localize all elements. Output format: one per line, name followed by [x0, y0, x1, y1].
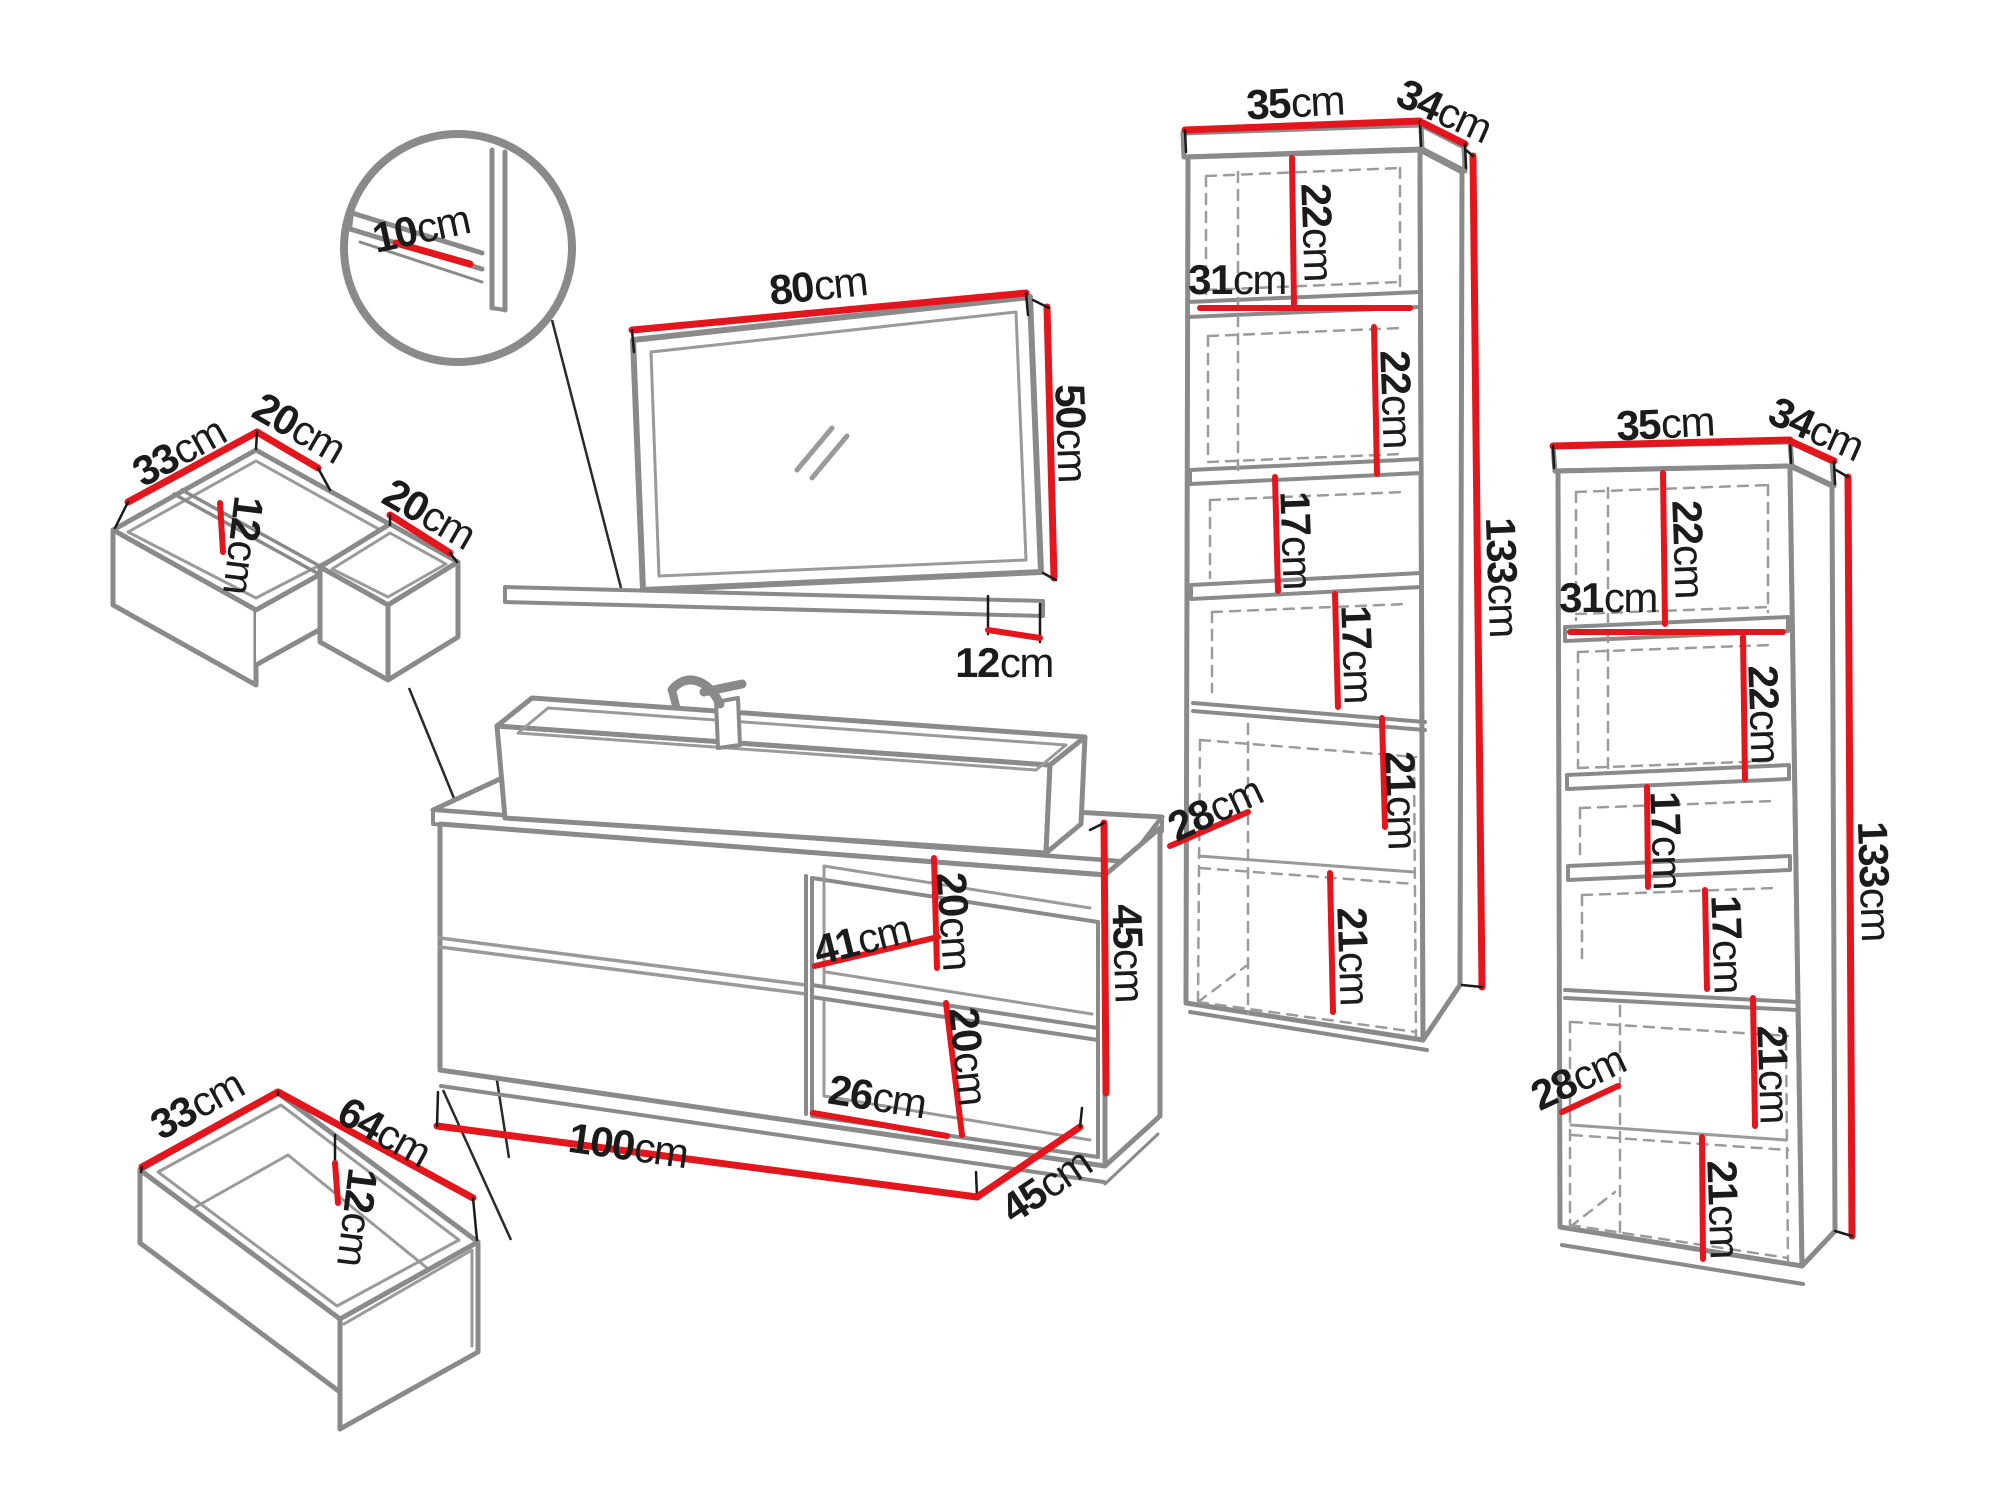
label-mirror-width: 80cm	[767, 260, 869, 312]
label-cab1-upper-niche: 22cm	[1294, 182, 1339, 281]
label-cab1-door-lower: 21cm	[1330, 906, 1375, 1005]
label-cab1-fourth-niche: 17cm	[1334, 604, 1379, 703]
label-vanity-niche-upper-height: 20cm	[930, 871, 979, 971]
label-cab2-top-width: 35cm	[1615, 400, 1715, 447]
label-cab2-inner-width: 31cm	[1559, 577, 1657, 619]
label-cab1-height: 133cm	[1479, 517, 1525, 638]
label-cab2-height: 133cm	[1851, 821, 1897, 942]
mirror-drawing	[505, 293, 1056, 642]
label-vanity-height: 45cm	[1105, 903, 1150, 1002]
label-cab2-second-niche: 22cm	[1741, 664, 1786, 763]
label-cab2-door-upper: 21cm	[1750, 1024, 1795, 1123]
label-cab1-inner-width: 31cm	[1188, 259, 1286, 301]
label-cab1-door-upper: 21cm	[1378, 750, 1423, 849]
label-cab1-third-niche: 17cm	[1273, 490, 1318, 589]
label-drawer-depth: 12cm	[330, 1166, 384, 1268]
label-mirror-height: 50cm	[1048, 383, 1093, 482]
label-mirror-shelf-depth: 12cm	[955, 642, 1053, 684]
vanity-drawing	[433, 680, 1162, 1197]
label-cab2-door-lower: 21cm	[1700, 1159, 1745, 1258]
label-vanity-niche-lower-height: 20cm	[942, 1005, 994, 1107]
label-cab2-third-niche: 17cm	[1643, 790, 1688, 889]
label-cab1-top-width: 35cm	[1245, 79, 1345, 126]
furniture-dimension-diagram: 10cm 80cm 50cm 12cm 33cm 20cm 12cm 20cm …	[0, 0, 2000, 1500]
diagram-linework	[0, 0, 2000, 1500]
label-cab2-fourth-niche: 17cm	[1704, 894, 1749, 993]
label-cab2-upper-niche: 22cm	[1665, 499, 1710, 598]
label-organizer-depth: 12cm	[216, 494, 270, 596]
label-cab1-second-niche: 22cm	[1373, 349, 1418, 448]
